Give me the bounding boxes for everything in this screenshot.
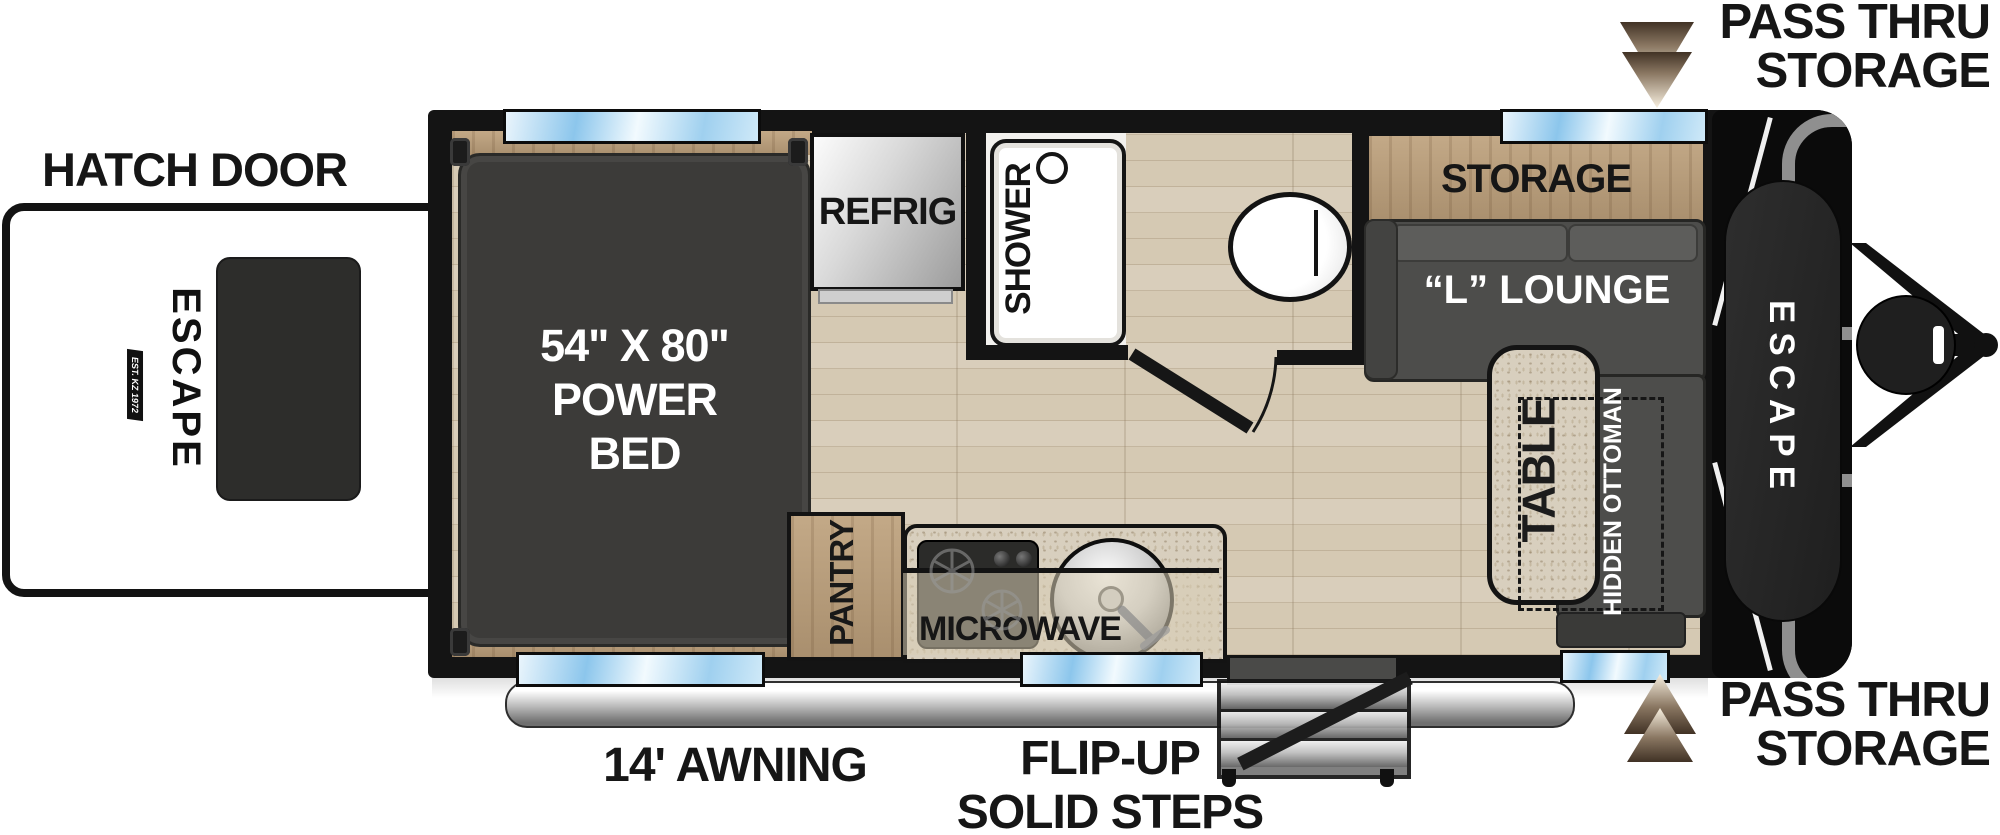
hatch-escape-logo: ESCAPE [150, 260, 220, 496]
bed-hinge-icon [450, 138, 470, 166]
toilet [1228, 192, 1352, 302]
counter-divider [903, 568, 1219, 573]
awning-tube [505, 681, 1575, 728]
ottoman-label: HIDDEN OTTOMAN [1592, 405, 1634, 597]
refrig-base [818, 289, 953, 304]
lounge-bench [1556, 612, 1686, 648]
step-foot [1380, 769, 1394, 787]
pantry-label: PANTRY [787, 512, 897, 653]
storage-cabinet: STORAGE [1366, 133, 1706, 225]
stove-knob-icon [994, 551, 1010, 567]
hatch-mattress [216, 257, 361, 501]
bath-wall-left [966, 131, 986, 360]
bed-size-text: 54" X 80" [540, 319, 729, 373]
steps-label-line2: SOLID STEPS [935, 789, 1285, 835]
sofa-armrest [1364, 219, 1398, 380]
hidden-ottoman-outline [1518, 397, 1664, 611]
sofa-back-cushion [1568, 224, 1698, 262]
kz-est-badge: EST. KZ 1972 [118, 350, 152, 420]
sofa-back-cushion [1392, 224, 1568, 262]
bed-hinge-icon [788, 138, 808, 166]
stove-knob-icon [1016, 551, 1032, 567]
refrig-label: REFRIG [819, 193, 957, 231]
window [516, 652, 765, 687]
refrigerator: REFRIG [810, 133, 965, 291]
bath-wall-bottom [966, 345, 1128, 360]
window [1020, 652, 1203, 687]
hitch-aframe [1850, 243, 1998, 447]
window [503, 109, 761, 144]
bath-wall-stub [1277, 350, 1354, 365]
lounge-label: “L” LOUNGE [1394, 258, 1700, 322]
awning-label: 14' AWNING [560, 742, 910, 790]
window [1500, 109, 1708, 144]
hatch-door-label: HATCH DOOR [42, 146, 347, 193]
power-bed: 54" X 80" POWER BED [458, 153, 811, 647]
window [1560, 650, 1670, 683]
steps-label-line1: FLIP-UP [960, 735, 1260, 783]
front-escape-logo: ESCAPE [1724, 180, 1838, 618]
toilet-seam [1314, 210, 1318, 276]
bed-type-text-2: BED [540, 427, 729, 481]
pass-thru-bottom-label: PASS THRU STORAGE [1690, 676, 1990, 774]
bed-type-text-1: POWER [540, 373, 729, 427]
storage-label: STORAGE [1441, 159, 1631, 199]
bed-hinge-icon [450, 628, 470, 656]
microwave-label: MICROWAVE [905, 612, 1135, 646]
pass-thru-top-label: PASS THRU STORAGE [1690, 0, 1990, 96]
shower-label: SHOWER [988, 139, 1050, 339]
floorplan-canvas: HATCH DOOR ESCAPE EST. KZ 1972 54" X 80"… [0, 0, 2000, 835]
arrow-down-icon [1622, 52, 1692, 108]
